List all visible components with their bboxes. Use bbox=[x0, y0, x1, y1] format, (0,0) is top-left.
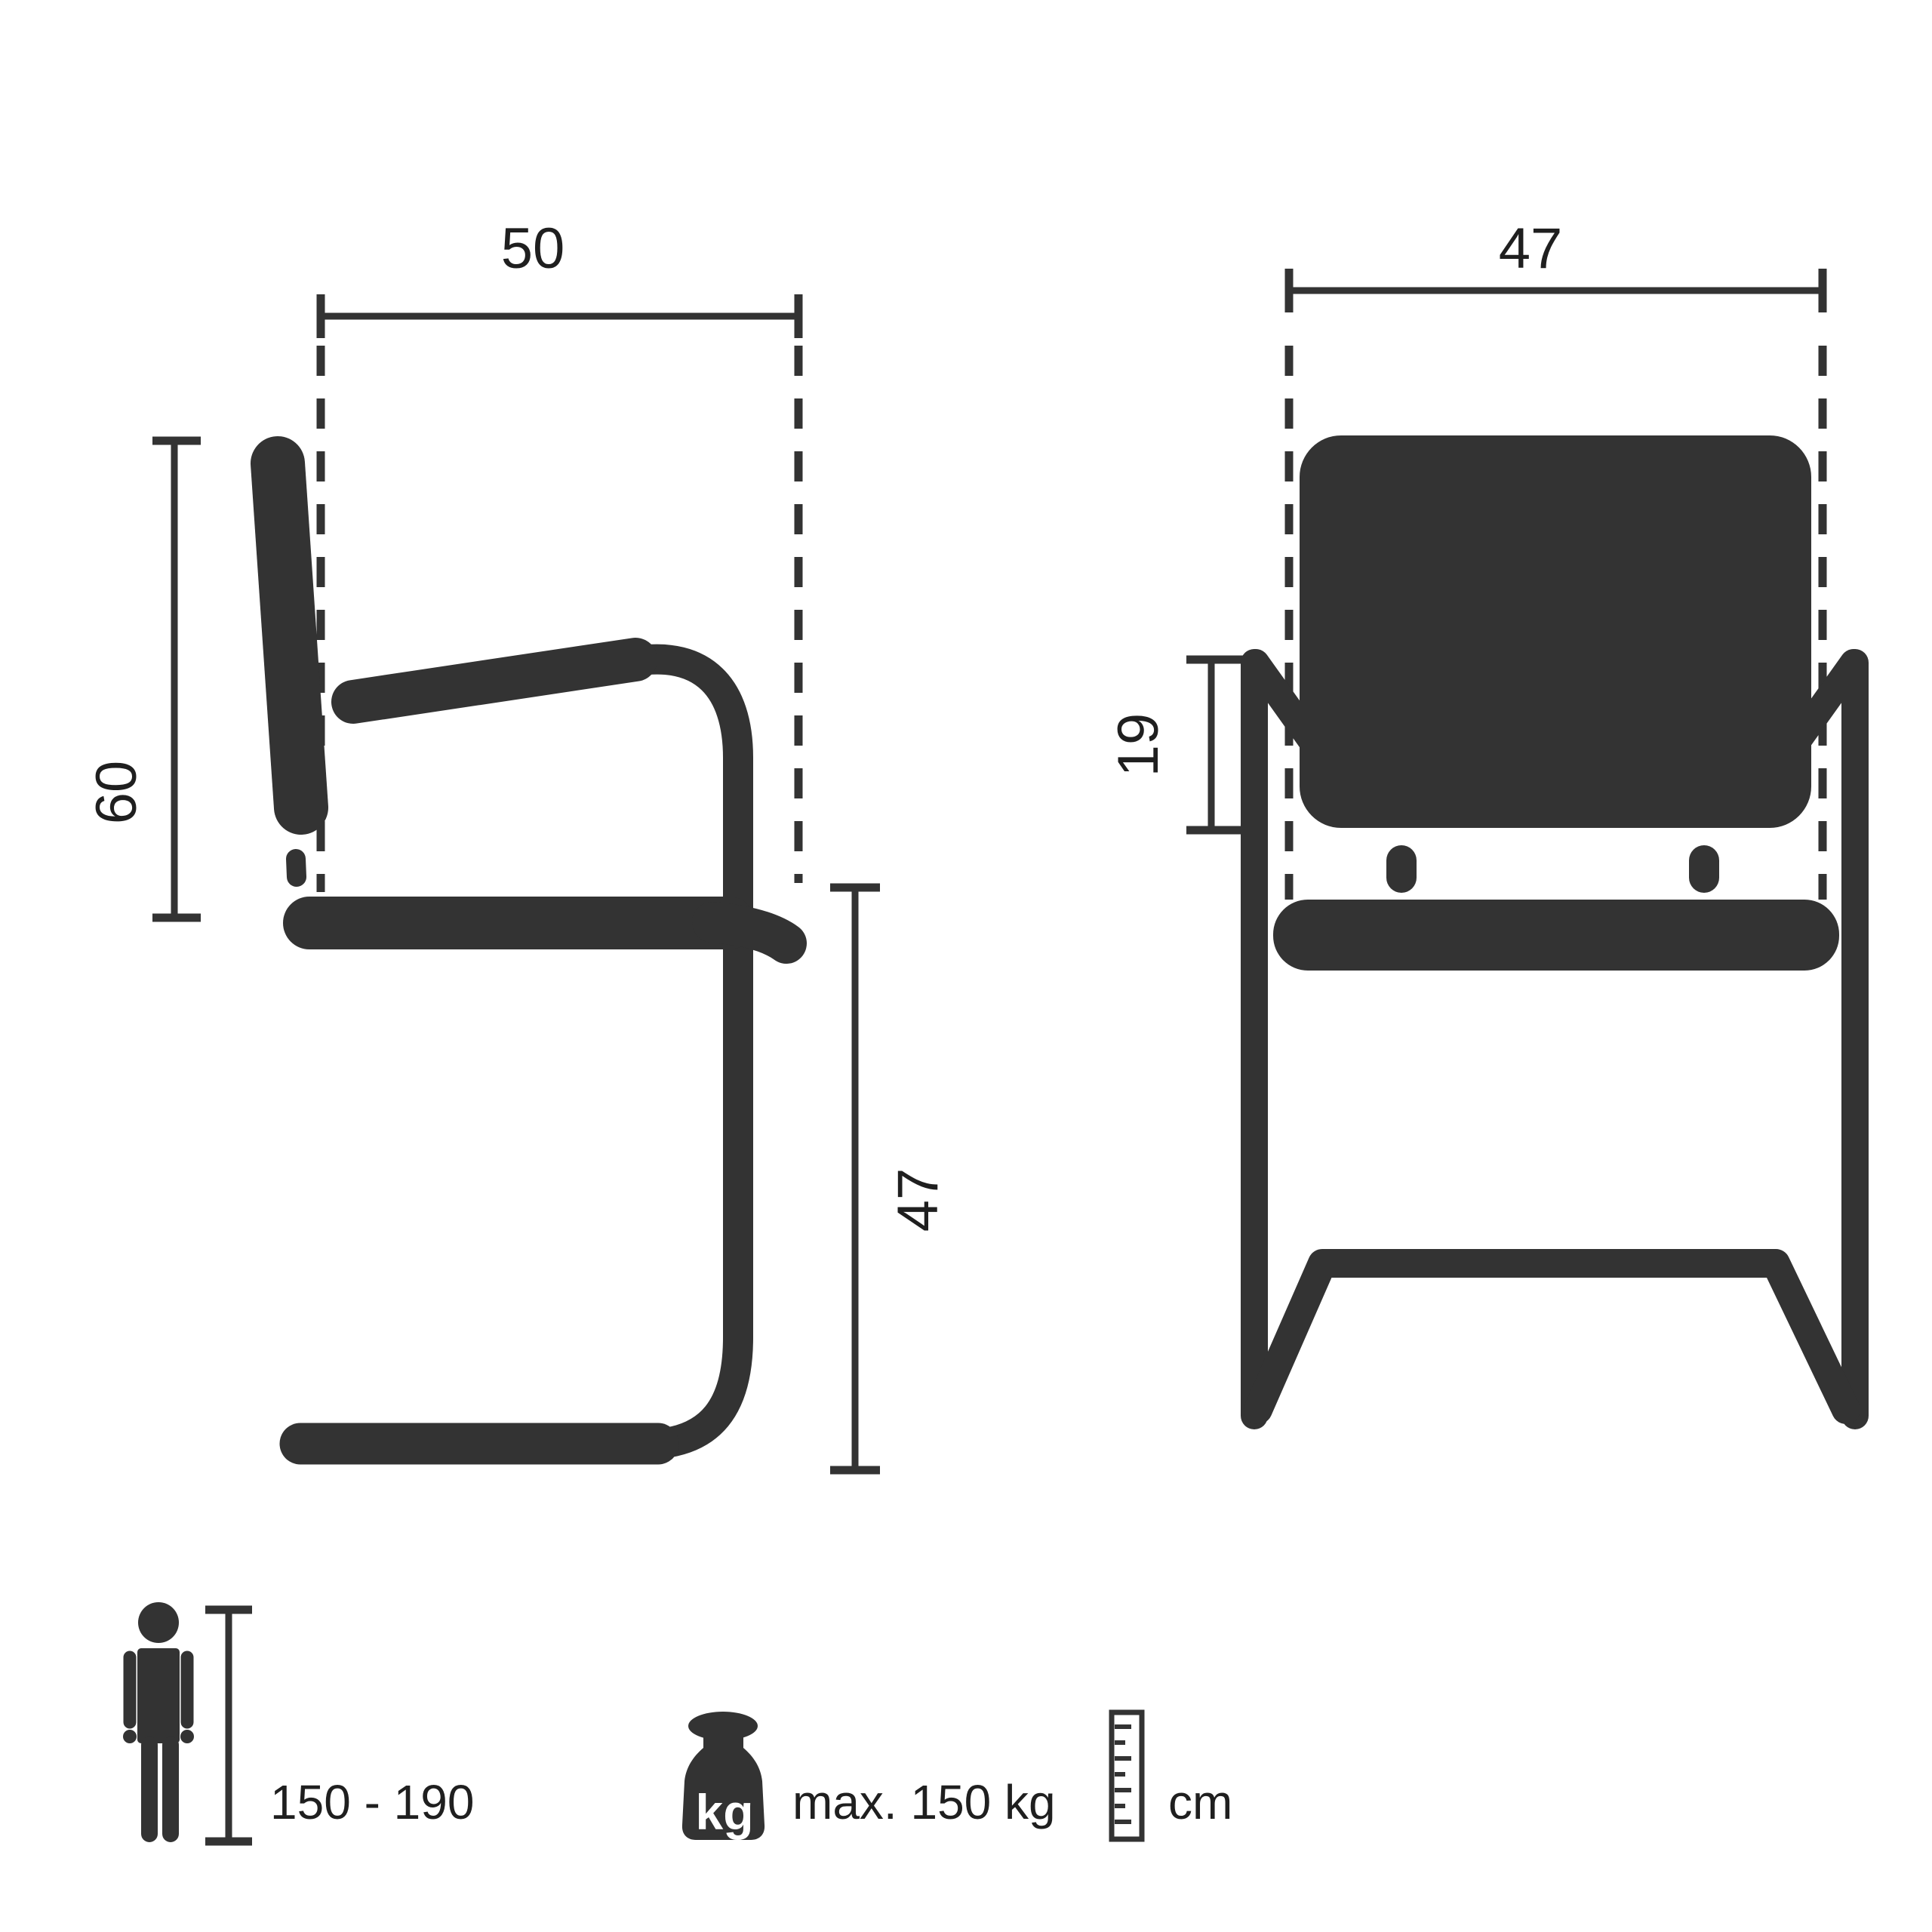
person-head bbox=[138, 1602, 179, 1643]
dimension-label-depth: 50 bbox=[501, 217, 565, 281]
dimension-armrest-height: 19 bbox=[1106, 660, 1245, 830]
chair-base-front bbox=[1258, 1263, 1846, 1410]
dimension-seat-depth: 50 bbox=[321, 217, 798, 338]
person-height-icon bbox=[123, 1602, 194, 1834]
ruler-icon bbox=[1112, 1712, 1142, 1839]
front-view: 47 19 bbox=[1106, 217, 1855, 1416]
person-hand-left bbox=[123, 1730, 137, 1743]
chair-frame-side bbox=[423, 660, 738, 1444]
person-torso bbox=[137, 1648, 180, 1743]
weight-icon-label: kg bbox=[695, 1784, 753, 1840]
chair-armrest-side bbox=[353, 660, 635, 702]
chair-dimension-diagram: 50 60 47 bbox=[0, 0, 1932, 1932]
chair-side-silhouette bbox=[278, 463, 786, 1444]
chair-front-silhouette bbox=[1254, 435, 1855, 1416]
dimension-label-width: 47 bbox=[1499, 217, 1563, 281]
dimension-person-height bbox=[205, 1610, 252, 1841]
unit-label: cm bbox=[1168, 1775, 1232, 1829]
chair-backrest-front bbox=[1300, 435, 1811, 828]
dimension-label-armrest-height: 19 bbox=[1106, 713, 1171, 777]
person-height-range-label: 150 - 190 bbox=[270, 1775, 474, 1829]
chair-seat-front-edge-side bbox=[712, 922, 786, 943]
dimension-label-backrest-height: 60 bbox=[85, 761, 149, 825]
weight-icon: kg bbox=[682, 1712, 764, 1840]
chair-backrest-connector-side bbox=[296, 859, 297, 877]
footer-legend: 150 - 190 kg max. 150 kg cm bbox=[123, 1602, 1232, 1841]
chair-seat-front bbox=[1273, 900, 1839, 971]
chair-backrest-side bbox=[278, 463, 301, 808]
dimension-backrest-height: 60 bbox=[85, 441, 201, 918]
max-weight-label: max. 150 kg bbox=[792, 1775, 1056, 1829]
person-hand-right bbox=[180, 1730, 194, 1743]
side-view: 50 60 47 bbox=[85, 217, 950, 1470]
dimension-seat-height: 47 bbox=[830, 888, 950, 1470]
dimension-seat-width: 47 bbox=[1289, 217, 1823, 312]
dimension-label-seat-height: 47 bbox=[886, 1168, 950, 1232]
